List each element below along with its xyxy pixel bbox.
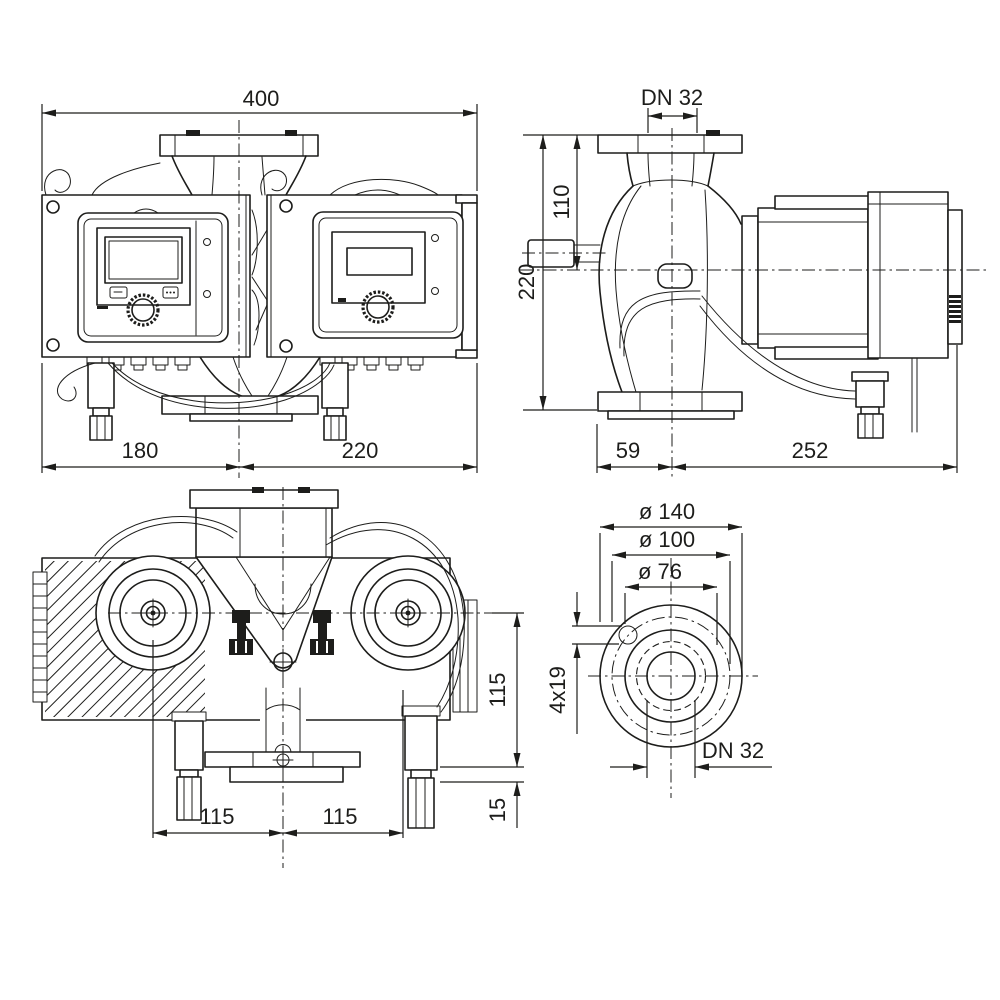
control-module-right <box>313 212 463 338</box>
motor-block <box>742 196 878 359</box>
dim-front-total-width: 400 <box>243 86 280 111</box>
dim-top-left-offset: 115 <box>199 804 234 829</box>
volute-body <box>599 180 741 392</box>
dim-top-flange-offset: 15 <box>485 798 510 822</box>
dim-front-right-width: 220 <box>342 438 379 463</box>
pressure-flange-bottom <box>598 392 742 419</box>
pressure-port <box>522 240 606 267</box>
cable-glands <box>87 357 423 370</box>
power-connector-left <box>88 363 114 440</box>
dim-side-front-depth: 59 <box>616 438 640 463</box>
dimension-heights: 110 220 <box>514 135 598 410</box>
dimension-nominal-top: DN 32 <box>641 85 703 133</box>
dim-front-left-width: 180 <box>122 438 159 463</box>
electronics-module <box>868 192 962 358</box>
status-led <box>97 306 108 309</box>
suction-flange-top <box>598 130 742 186</box>
dim-flange-raised-face: ø 76 <box>638 559 682 584</box>
dim-top-right-offset: 115 <box>322 804 357 829</box>
top-view: 115 115 115 15 <box>33 487 524 868</box>
status-led <box>338 298 346 302</box>
dim-side-nominal: DN 32 <box>641 85 703 110</box>
dim-side-total-height: 220 <box>514 264 539 301</box>
side-view: DN 32 110 220 59 252 <box>514 85 988 478</box>
front-view: 400 180 220 <box>42 86 477 478</box>
technical-drawing-page: 400 180 220 <box>0 0 1000 1000</box>
dim-flange-outer: ø 140 <box>639 499 695 524</box>
pump-dimensional-drawing: 400 180 220 <box>0 0 1000 1000</box>
dim-flange-bolt-circle: ø 100 <box>639 527 695 552</box>
power-connector-right-top <box>402 706 440 828</box>
flange-neck-top <box>196 508 332 557</box>
dim-top-axis-depth: 115 <box>485 672 510 707</box>
ribbed-connector-strip <box>33 572 47 702</box>
control-module-left <box>78 209 228 342</box>
dim-side-rear-depth: 252 <box>792 438 829 463</box>
dim-flange-nominal: DN 32 <box>702 738 764 763</box>
dim-side-port-height: 110 <box>549 184 574 219</box>
dimension-nominal-bore: DN 32 <box>610 700 772 778</box>
dim-flange-bolt-holes: 4x19 <box>545 666 570 714</box>
flange-view: ø 140 ø 100 ø 76 4x19 <box>545 499 772 798</box>
power-connector-right <box>322 363 348 440</box>
